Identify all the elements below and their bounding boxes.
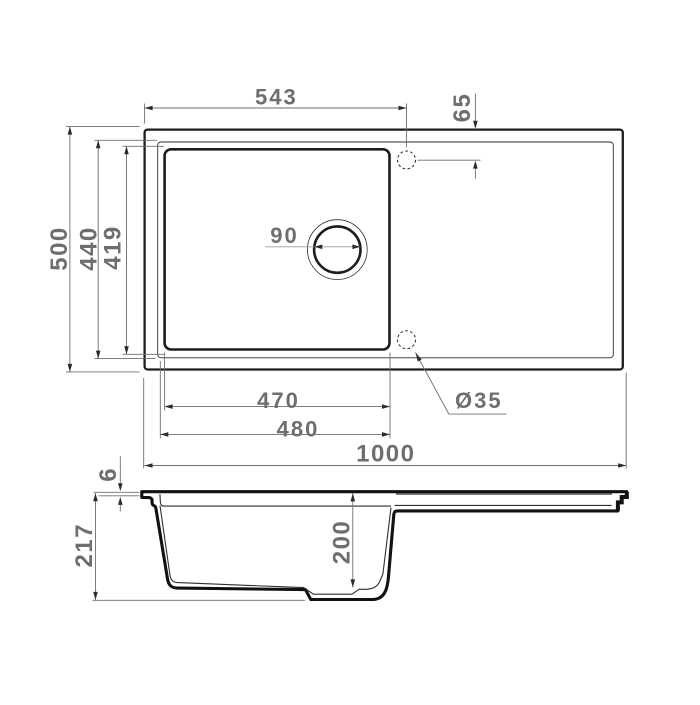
svg-text:480: 480 [277,417,320,442]
svg-text:543: 543 [255,84,298,109]
svg-text:6: 6 [95,467,122,482]
svg-text:200: 200 [329,520,356,565]
svg-text:470: 470 [257,388,300,413]
svg-text:65: 65 [449,93,476,123]
svg-text:440: 440 [76,226,103,271]
svg-text:419: 419 [100,225,127,270]
svg-text:90: 90 [270,223,298,248]
svg-text:217: 217 [71,523,98,568]
svg-text:500: 500 [46,226,73,271]
svg-text:Ø35: Ø35 [455,388,503,413]
svg-text:1000: 1000 [356,440,415,467]
